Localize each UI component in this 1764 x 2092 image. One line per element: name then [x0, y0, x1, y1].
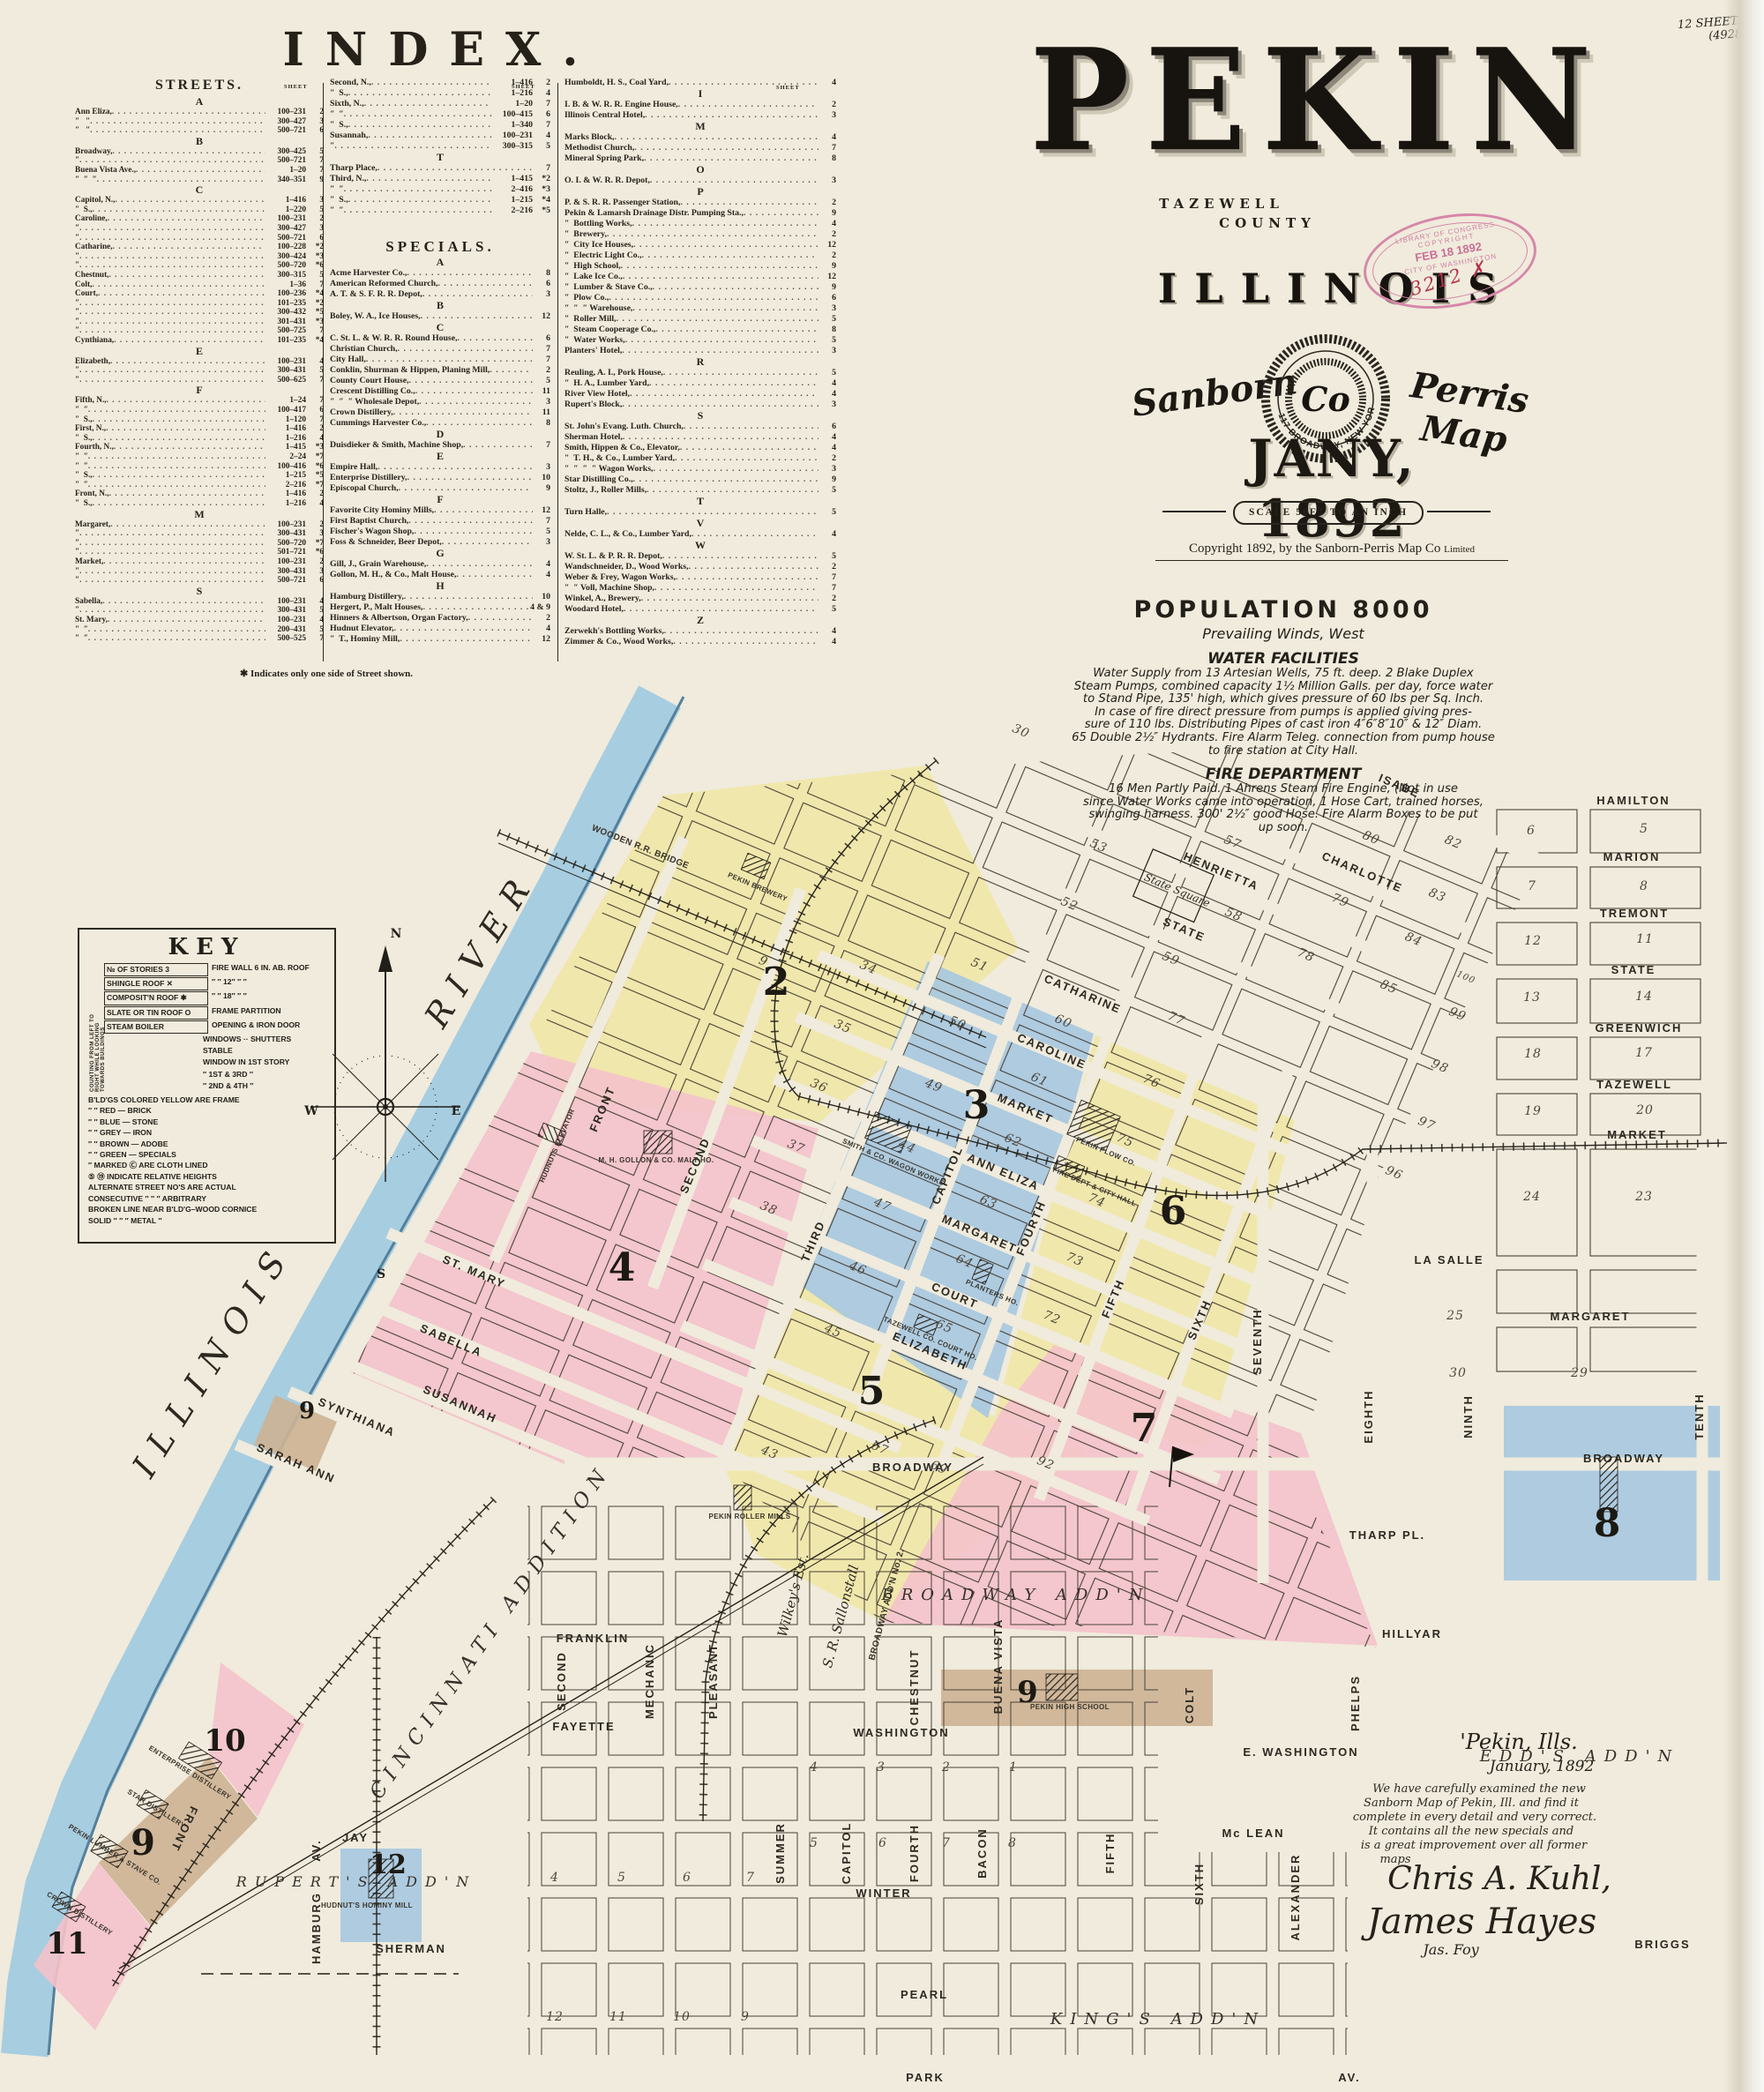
index-entry-name: Fischer's Wagon Shop, — [330, 527, 414, 537]
index-entry-name: ″ Lumber & Stave Co., — [564, 282, 653, 293]
index-entry-name: ″ ″ ″ Wholesale Depot, — [330, 397, 419, 407]
index-row: F — [75, 385, 324, 396]
index-dot-leader — [415, 386, 533, 397]
water-facilities-line: 65 Double 2½″ Hydrants. Fire Alarm Teleg… — [1045, 732, 1521, 745]
key-symbol-cell: SHINGLE ROOF ✕ — [104, 977, 208, 990]
index-section-letter: T — [564, 496, 836, 507]
index-dot-leader — [680, 443, 818, 453]
index-dot-leader — [344, 109, 492, 120]
key-rule-line: ″ ″ GREEN — SPECIALS — [88, 1149, 329, 1160]
index-dot-leader — [93, 434, 265, 444]
sheet-number: 4 — [609, 1245, 636, 1290]
key-symbol-cell — [104, 1057, 203, 1068]
block-number: 7 — [1528, 879, 1536, 893]
index-entry-sheet: 5 — [818, 314, 836, 325]
index-entry-sheet: 5 — [306, 625, 324, 635]
index-dot-leader — [678, 100, 818, 110]
key-meaning-cell: STABLE — [203, 1045, 329, 1057]
index-row: Susannah, 100–231 4 — [330, 131, 550, 141]
index-entry-sheet: *5 — [533, 205, 550, 216]
index-dot-leader — [79, 548, 265, 557]
index-entry-range: 1–20 — [492, 99, 533, 109]
index-dot-leader — [664, 626, 818, 637]
index-dot-leader — [642, 250, 818, 261]
index-dot-leader — [377, 462, 533, 473]
index-row: B — [75, 136, 324, 147]
index-entry-name: Zerwekh's Bottling Works, — [564, 626, 664, 637]
index-entry-range: 100–231 — [265, 214, 306, 224]
index-row: Crown Distillery, 11 — [330, 407, 550, 418]
index-dot-leader — [663, 368, 818, 378]
index-dot-leader — [88, 406, 265, 415]
index-entry-sheet: 2 — [533, 78, 550, 88]
block-number: 4 — [549, 1871, 559, 1885]
handwriting-text: 'Pekin, Ills. — [1460, 1730, 1578, 1754]
index-entry-sheet: 6 — [306, 576, 324, 586]
sheet-number: 3 — [963, 1083, 990, 1128]
index-row: ″ Plow Co., 6 — [564, 293, 836, 303]
key-symbol-cell: № OF STORIES 3 — [104, 963, 208, 976]
index-entry-range: 2–216 — [492, 205, 533, 216]
index-entry-range: 1–216 — [265, 499, 306, 509]
index-entry-sheet: 4 — [533, 88, 550, 99]
index-entry-sheet: *5 — [306, 308, 324, 318]
index-entry-range: 1–220 — [265, 205, 306, 215]
index-entry-sheet: *2 — [306, 243, 324, 252]
index-entry-name: ″ ″ — [75, 462, 88, 472]
index-entry-name: ″ Electric Light Co., — [564, 250, 642, 261]
street-label: MECHANIC — [643, 1643, 656, 1719]
index-dot-leader — [676, 572, 818, 583]
index-dot-leader — [79, 299, 265, 309]
index-entry-sheet: *5 — [306, 471, 324, 481]
index-dot-leader — [625, 335, 818, 346]
index-entry-name: Gill, J., Grain Warehouse, — [330, 559, 426, 570]
sheet-column-label: SHEET — [512, 84, 535, 90]
index-dot-leader — [621, 261, 818, 272]
index-entry-range: 300–431 — [265, 366, 306, 376]
street-label: COLT — [1183, 1686, 1196, 1723]
street-label: Mc LEAN — [1222, 1827, 1284, 1840]
index-street-list: A Ann Eliza, 100–231 2 — [75, 96, 324, 644]
index-entry-sheet: 6 — [533, 333, 550, 344]
index-entry-sheet: 4 — [818, 529, 836, 540]
block-number: 5 — [617, 1871, 626, 1885]
index-row: ″ S., 1–220 5 — [75, 205, 324, 215]
index-entry-sheet: 7 — [533, 344, 550, 355]
index-entry-name: First, N., — [75, 424, 106, 434]
street-label: MARION — [1603, 850, 1661, 863]
index-entry-sheet: 7 — [306, 634, 324, 644]
index-entry-sheet: 6 — [306, 126, 324, 136]
index-entry-range: 100–417 — [265, 406, 306, 415]
index-dot-leader — [624, 604, 818, 615]
index-entry-name: Hudnut Elevator, — [330, 624, 394, 634]
block-number: 7 — [942, 1836, 951, 1850]
index-entry-sheet: 6 — [533, 109, 550, 120]
index-entry-name: ″ ″ Voll, Machine Shop, — [564, 583, 654, 594]
index-dot-leader — [88, 625, 265, 635]
index-dot-leader — [110, 520, 265, 530]
index-entry-sheet: *3 — [306, 443, 324, 452]
index-row: S — [564, 410, 836, 422]
street-label: NINTH — [1461, 1394, 1475, 1438]
index-row: ″ 501–721 *6 — [75, 548, 324, 557]
key-row: WINDOWS ·· SHUTTERS — [104, 1034, 329, 1045]
index-entry-range: 100–231 — [492, 131, 533, 141]
index-row: Sherman Hotel, 4 — [564, 432, 836, 443]
index-entry-name: ″ ″ — [75, 634, 88, 644]
index-dot-leader — [79, 567, 265, 577]
index-dot-leader — [79, 224, 265, 234]
index-entry-range: 100–231 — [265, 616, 306, 625]
block-number: 11 — [609, 2010, 627, 2024]
index-entry-range: 1–120 — [265, 415, 306, 425]
index-dot-leader — [371, 78, 492, 88]
index-entry-name: ″ S., — [75, 415, 93, 425]
index-entry-name: Cynthiana, — [75, 336, 114, 346]
index-entry-sheet: 3 — [818, 176, 836, 186]
compass-letter: S — [377, 1267, 385, 1281]
block-number: 1 — [1009, 1760, 1018, 1774]
index-dot-leader — [110, 357, 265, 367]
index-dot-leader — [107, 396, 265, 406]
key-symbol-cell: SLATE OR TIN ROOF O — [104, 1006, 208, 1020]
key-rule-line: ″ MARKED Ⓒ ARE CLOTH LINED — [88, 1160, 329, 1170]
index-section-letter: B — [75, 136, 324, 147]
index-row: I. B. & W. R. R. Engine House, 2 — [564, 100, 836, 110]
block-number: 9 — [741, 2010, 750, 2024]
index-entry-name: Reuling, A. I., Pork House, — [564, 368, 663, 378]
index-entry-name: Catharine, — [75, 243, 113, 252]
index-entry-range: 100–231 — [265, 557, 306, 567]
key-meaning-cell: FIRE WALL 6 IN. AB. ROOF — [212, 962, 329, 976]
index-entry-range: 500–721 — [265, 156, 306, 166]
index-entry-name: Broadway, — [75, 147, 112, 157]
fire-department-text: 16 Men Partly Paid. 1 Ahrens Steam Fire … — [1045, 783, 1521, 834]
index-row: G — [330, 548, 550, 559]
index-entry-name: C. St. L. & W. R. R. Round House, — [330, 333, 458, 344]
sanborn-map-sheet: ISABECHARLOTTEHENRIETTASTATECATHARINECAR… — [0, 0, 1764, 2092]
index-entry-sheet: 4 — [533, 624, 550, 634]
index-entry-range: 100–416 — [265, 462, 306, 472]
index-entry-name: St. Mary, — [75, 616, 108, 625]
sheet-number: 9 — [131, 1822, 155, 1864]
index-entry-range: 101–235 — [265, 336, 306, 346]
key-rule-line: B'LD'GS COLORED YELLOW ARE FRAME — [88, 1095, 329, 1105]
key-symbol-cell — [104, 1080, 203, 1092]
index-row: Star Distilling Co., 9 — [564, 474, 836, 485]
index-entry-sheet: 7 — [533, 120, 550, 131]
index-entry-name: Enterprise Distillery, — [330, 473, 407, 483]
index-dot-leader — [93, 471, 265, 481]
index-dot-leader — [93, 499, 265, 509]
index-entry-name: Christian Church, — [330, 344, 398, 355]
index-entry-sheet: 4 — [818, 389, 836, 400]
index-entry-sheet: 12 — [818, 272, 836, 282]
index-row: ″ ″ 200–431 5 — [75, 625, 324, 635]
key-row: ″ 1ST & 3RD ″ — [104, 1069, 329, 1080]
note-line: complete in every detail and very correc… — [1353, 1811, 1596, 1824]
index-entry-sheet: 2 — [306, 520, 324, 530]
index-entry-name: Weber & Frey, Wagon Works, — [564, 572, 676, 583]
block-number: 23 — [1634, 1190, 1653, 1204]
fire-department-line: since Water Works came into operation, 1… — [1045, 796, 1521, 810]
handwriting-text: James Hayes — [1361, 1901, 1596, 1942]
index-dot-leader — [641, 594, 818, 604]
index-entry-sheet: 2 — [306, 557, 324, 567]
index-entry-sheet: 2 — [818, 250, 836, 261]
index-dot-leader — [108, 616, 265, 625]
index-entry-name: County Court House, — [330, 376, 409, 386]
index-entry-name: Episcopal Church, — [330, 483, 399, 494]
index-streets-column-1: STREETS. A Ann Eliza, 100–231 — [75, 78, 324, 644]
index-dot-leader — [109, 489, 265, 499]
index-row: Buena Vista Ave., 1–20 7 — [75, 166, 324, 176]
index-row: ″ ″ 100–415 6 — [330, 109, 550, 120]
index-entry-range: 100–231 — [265, 357, 306, 367]
index-entry-sheet: *7 — [306, 539, 324, 549]
index-row: ″ 300–431 3 — [75, 529, 324, 539]
county-label-line1: TAZEWELL — [1147, 196, 1297, 212]
index-entry-sheet: 5 — [818, 485, 836, 496]
index-entry-sheet: 4 — [818, 626, 836, 637]
index-dot-leader — [88, 634, 265, 644]
index-row: ″ ″ 100–417 6 — [75, 406, 324, 415]
index-section-letter: G — [330, 548, 550, 559]
block-number: 20 — [1635, 1103, 1654, 1117]
index-row: P. & S. R. R. Passenger Station, 2 — [564, 198, 836, 208]
index-entry-name: Second, N., — [330, 78, 371, 88]
index-row: ″ S., 1–215 *5 — [75, 471, 324, 481]
key-side-note: COUNTING FROM LEFT TO RIGHT WHILE LOOKIN… — [90, 995, 106, 1092]
index-entry-range: 300–315 — [492, 141, 533, 152]
index-dot-leader — [109, 271, 266, 280]
index-dot-leader — [136, 166, 265, 176]
key-symbol-cell: COMPOSIT'N ROOF ✱ — [104, 991, 208, 1005]
index-dot-leader — [633, 474, 818, 485]
index-row: ″ ″ ″ Wholesale Depot, 3 — [330, 397, 550, 407]
index-section-letter: T — [330, 152, 550, 163]
block-number: 12 — [546, 2010, 564, 2024]
block-number: 17 — [1635, 1046, 1653, 1060]
index-row: M — [564, 121, 836, 132]
index-entry-sheet: 2 — [818, 229, 836, 240]
index-row: Capitol, N., 1–416 3 — [75, 196, 324, 205]
street-label: HAMILTON — [1596, 794, 1670, 807]
index-dot-leader — [88, 462, 265, 472]
index-row: First, N., 1–416 2 — [75, 424, 324, 434]
index-entry-sheet: 4 — [818, 78, 836, 88]
street-label: CHESTNUT — [908, 1649, 921, 1726]
index-entry-name: Acme Harvester Co., — [330, 268, 407, 279]
index-entry-name: Capitol, N., — [75, 196, 115, 205]
block-number: 11 — [1636, 932, 1654, 946]
index-dot-leader — [426, 559, 533, 570]
key-meaning-cell: ″ ″ 12″ ″ ″ — [212, 976, 329, 990]
index-entry-range: 500–721 — [265, 126, 306, 136]
index-dot-leader — [408, 516, 533, 527]
index-row: ″ 101–235 *2 — [75, 299, 324, 309]
index-section-letter: F — [330, 494, 550, 505]
sheet-number: 9 — [299, 1398, 315, 1424]
sheet-number: 11 — [46, 1926, 87, 1961]
index-row: Fifth, N., 1–24 7 — [75, 396, 324, 406]
street-label: FAYETTE — [552, 1720, 615, 1733]
index-section-letter: C — [330, 322, 550, 333]
index-entry-name: Crown Distillery, — [330, 407, 393, 418]
index-entry-name: ″ S., — [75, 434, 93, 444]
index-section-big: SPECIALS. — [330, 237, 550, 257]
index-row: Hergert, P., Malt Houses, 4 & 9 — [330, 602, 550, 613]
index-entry-name: Court, — [75, 289, 98, 299]
key-meaning-cell: WINDOWS ·· SHUTTERS — [203, 1034, 329, 1045]
index-entry-name: ″ H. A., Lumber Yard, — [564, 378, 649, 389]
index-entry-sheet: 5 — [306, 205, 324, 215]
index-entry-sheet: 3 — [533, 289, 550, 300]
index-entry-sheet: 9 — [818, 208, 836, 219]
index-section-letter: R — [564, 356, 836, 368]
water-facilities-line: to Stand Pipe, 135' high, which gives pr… — [1045, 693, 1521, 706]
note-line: Sanborn Map of Pekin, Ill. and find it — [1364, 1797, 1580, 1810]
index-entry-sheet: *3 — [533, 184, 550, 195]
index-entry-sheet: 4 — [306, 499, 324, 509]
sheet-number: 6 — [1160, 1189, 1187, 1234]
index-row: ″ ″ 100–416 *6 — [75, 462, 324, 472]
index-entry-sheet: 5 — [533, 527, 550, 537]
index-entry-sheet: 5 — [306, 147, 324, 157]
index-row: Colt, 1–36 7 — [75, 280, 324, 290]
index-section-letter: E — [330, 451, 550, 462]
index-row: V — [564, 518, 836, 529]
index-section-letter: M — [75, 509, 324, 520]
index-row: R — [564, 356, 836, 368]
building-label: M. H. GOLLON & CO. MALT HO. — [598, 1156, 714, 1164]
index-entry-sheet: *4 — [306, 289, 324, 299]
index-entry-name: Illinois Central Hotel, — [564, 110, 645, 121]
street-label: MARGARET — [1550, 1310, 1630, 1323]
index-dot-leader — [632, 219, 818, 229]
index-row: ″ High School, 9 — [564, 261, 836, 272]
index-entry-sheet: 4 — [306, 357, 324, 367]
index-entry-range: 300–425 — [265, 147, 306, 157]
note-line: It contains all the new specials and — [1368, 1825, 1574, 1838]
block-number: 96 — [1383, 1163, 1405, 1183]
index-entry-sheet: 8 — [533, 418, 550, 429]
index-row: Fourth, N., 1–415 *3 — [75, 443, 324, 452]
street-label: BUENA VISTA — [991, 1618, 1005, 1715]
index-row: ″ ″ 2–24 *7 — [75, 452, 324, 462]
index-entry-range: 1–215 — [492, 195, 533, 205]
index-row: River View Hotel, 4 — [564, 389, 836, 400]
index-entry-name: Front, N., — [75, 489, 109, 499]
index-row: W. St. L. & P. R. R. Depot, 5 — [564, 551, 836, 562]
index-entry-name: ″ ″ — [75, 406, 88, 415]
index-section-letter: A — [330, 257, 550, 268]
index-entry-name: Ann Eliza, — [75, 108, 112, 117]
key-row: SLATE OR TIN ROOF O FRAME PARTITION — [104, 1005, 329, 1020]
index-dot-leader — [112, 147, 265, 157]
index-entry-name: ″ ″ ″ — [75, 176, 97, 185]
index-entry-range: 500–721 — [265, 576, 306, 586]
index-row: American Reformed Church, 6 — [330, 279, 550, 289]
block-number: 5 — [810, 1836, 818, 1850]
index-row: SPECIALS. — [330, 237, 550, 257]
index-section-letter: S — [75, 586, 324, 597]
block-number: 19 — [1524, 1104, 1542, 1118]
sheet-number: 7 — [1131, 1406, 1158, 1451]
population-line: POPULATION 8000 — [1045, 596, 1521, 624]
index-entry-sheet: 2 — [306, 424, 324, 434]
index-entry-sheet: 6 — [818, 422, 836, 432]
index-entry-sheet: 4 — [818, 443, 836, 453]
sheet-number: 10 — [204, 1723, 245, 1759]
index-row: ″ 300–431 5 — [75, 606, 324, 616]
index-section-letter: W — [564, 540, 836, 551]
index-dot-leader — [680, 198, 818, 208]
index-entry-name: I. B. & W. R. R. Engine House, — [564, 100, 678, 110]
index-entry-name: Elizabeth, — [75, 357, 110, 367]
index-row: ″ S., 1–216 4 — [75, 434, 324, 444]
index-entry-sheet: 11 — [533, 407, 550, 418]
index-row: A — [75, 96, 324, 108]
index-entry-name: Planters' Hotel, — [564, 346, 622, 356]
index-entry-range: 1–416 — [265, 196, 306, 205]
index-entry-sheet: 6 — [306, 406, 324, 415]
index-dot-leader — [113, 243, 265, 252]
index-row: T — [330, 152, 550, 163]
index-row: Ann Eliza, 100–231 2 — [75, 108, 324, 117]
street-label: BROADWAY — [1583, 1452, 1664, 1465]
index-row: Winkel, A., Brewery, 2 — [564, 594, 836, 604]
index-entry-name: ″ High School, — [564, 261, 621, 272]
index-dot-leader — [92, 280, 265, 290]
index-entry-name: Smith, Hippen & Co., Elevator, — [564, 443, 680, 453]
key-rule-line: ″ ″ BROWN — ADOBE — [88, 1139, 329, 1149]
index-row: Marks Block, 4 — [564, 132, 836, 143]
index-row: A — [330, 257, 550, 268]
index-entry-sheet: 5 — [306, 606, 324, 616]
street-label: SUMMER — [774, 1822, 787, 1884]
street-label: WINTER — [856, 1887, 911, 1900]
city-statistics: POPULATION 8000 Prevailing Winds, West W… — [1045, 596, 1521, 835]
index-dot-leader — [98, 289, 265, 299]
block-number: 97 — [1416, 1114, 1438, 1133]
index-entry-range: 500–720 — [265, 261, 306, 271]
key-rule-line: ″ ″ BLUE — STONE — [88, 1117, 329, 1127]
block-number: 8 — [1640, 879, 1648, 893]
index-dot-leader — [622, 400, 818, 410]
index-entry-range: 2–416 — [492, 184, 533, 195]
index-entry-name: Sabella, — [75, 597, 102, 607]
index-dot-leader — [689, 562, 818, 572]
index-entry-sheet: 2 — [533, 365, 550, 376]
index-dot-leader — [655, 325, 818, 335]
index-entry-sheet: 9 — [818, 474, 836, 485]
index-entry-range: 200–431 — [265, 625, 306, 635]
index-entry-name: W. St. L. & P. R. R. Depot, — [564, 551, 662, 562]
index-row: ″ S., 1–216 4 — [75, 499, 324, 509]
handwriting-text: Jas. Foy — [1420, 1941, 1479, 1958]
index-entry-sheet: 12 — [533, 311, 550, 322]
index-entry-name: ″ City Ice Houses, — [564, 240, 633, 250]
index-row: ″ S., 1–215 *4 — [330, 195, 550, 205]
index-dot-leader — [364, 99, 492, 109]
index-section-letter: A — [75, 96, 324, 108]
index-dot-leader — [490, 365, 533, 376]
note-line: is a great improvement over all former — [1361, 1839, 1588, 1852]
index-entry-sheet: 5 — [818, 507, 836, 518]
